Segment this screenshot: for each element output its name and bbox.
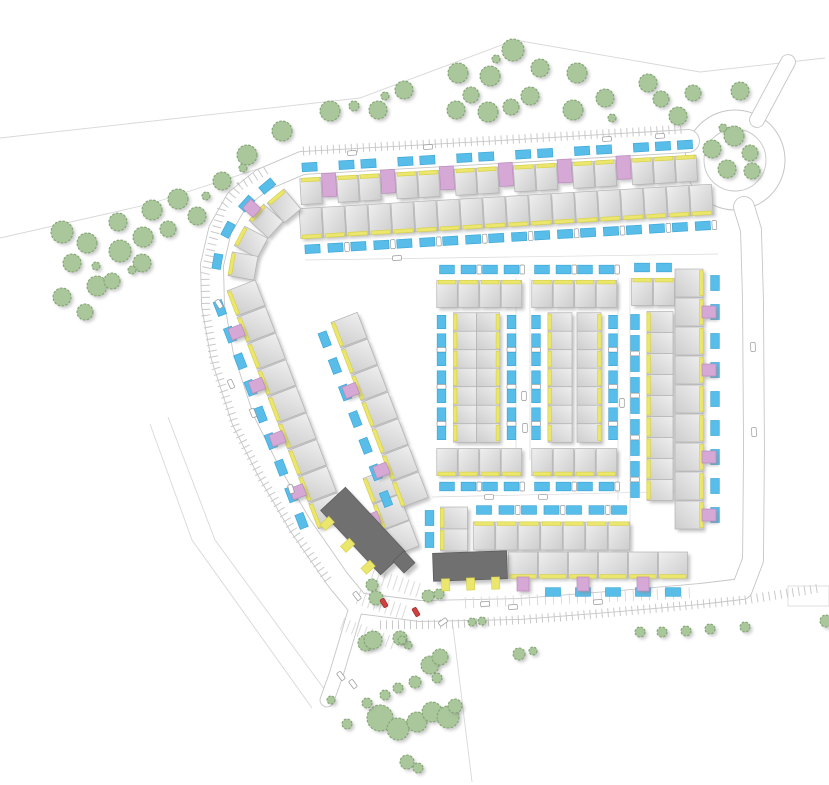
parking-pad xyxy=(507,389,516,402)
parking-pad xyxy=(420,237,435,246)
entrance-strip xyxy=(598,388,602,404)
tree xyxy=(364,631,382,649)
parking-pad xyxy=(567,506,582,515)
entrance-strip xyxy=(478,167,496,172)
car-white xyxy=(520,482,525,491)
parking-pad xyxy=(695,221,710,230)
parking-pad xyxy=(532,371,541,384)
entrance-strip xyxy=(417,227,436,232)
house xyxy=(629,552,658,578)
tree xyxy=(87,276,107,296)
car-white xyxy=(712,220,717,229)
parking-pad xyxy=(631,483,640,498)
parking-pad xyxy=(437,426,446,439)
tree xyxy=(237,145,257,165)
car-white xyxy=(620,399,625,408)
car-white xyxy=(615,482,620,491)
tree xyxy=(395,81,413,99)
site-plan xyxy=(0,0,829,785)
parking-pad xyxy=(457,153,472,162)
parking-pad xyxy=(631,378,640,393)
parking-pad xyxy=(361,159,376,168)
tree xyxy=(362,698,372,708)
accent-house xyxy=(321,173,336,197)
entrance-strip xyxy=(598,333,602,349)
entrance-strip xyxy=(438,280,456,284)
entrance-strip xyxy=(453,351,457,367)
entrance-strip xyxy=(548,425,552,441)
site-plan-drawing xyxy=(0,0,829,785)
parking-pad xyxy=(437,334,446,347)
parking-pad xyxy=(574,146,589,155)
house xyxy=(675,385,703,413)
entrance-strip xyxy=(496,425,500,441)
house xyxy=(647,312,673,333)
car-white xyxy=(532,421,541,426)
parking-pad xyxy=(612,506,627,515)
entrance-tab xyxy=(491,577,499,589)
parking-pad xyxy=(425,511,434,526)
parking-pad xyxy=(603,226,618,235)
parking-pad xyxy=(477,506,492,515)
parking-pad xyxy=(609,315,618,328)
car-white xyxy=(752,427,757,436)
tree xyxy=(531,59,549,77)
parking-pad xyxy=(580,228,595,237)
parking-pad xyxy=(488,233,503,242)
house xyxy=(586,522,608,550)
entrance-strip xyxy=(497,522,516,526)
entrance-strip xyxy=(515,165,533,170)
entrance-strip xyxy=(670,212,689,217)
entrance-strip xyxy=(301,177,319,182)
parking-pad xyxy=(437,352,446,365)
house xyxy=(632,279,653,306)
parking-pad xyxy=(440,482,455,491)
entrance-strip xyxy=(700,416,704,441)
tree xyxy=(213,172,231,190)
car-white xyxy=(515,506,520,515)
entrance-strip xyxy=(565,522,584,526)
tree xyxy=(320,101,340,121)
car-white xyxy=(572,265,577,274)
tree xyxy=(820,615,829,627)
entrance-strip xyxy=(509,222,528,227)
tree xyxy=(109,240,131,262)
car-white xyxy=(520,265,525,274)
parking-pad xyxy=(655,141,670,150)
entrance-strip xyxy=(440,531,444,550)
tree xyxy=(718,160,736,178)
car-white xyxy=(609,384,618,389)
house xyxy=(532,449,553,476)
parking-pad xyxy=(557,229,572,238)
parking-pad xyxy=(657,263,672,272)
accent-house xyxy=(577,577,589,591)
house xyxy=(647,354,673,375)
tree xyxy=(387,718,409,740)
house xyxy=(675,414,703,442)
tree xyxy=(92,262,100,270)
house xyxy=(675,356,703,384)
entrance-strip xyxy=(647,439,651,457)
tree xyxy=(567,63,587,83)
entrance-strip xyxy=(647,418,651,436)
house xyxy=(541,522,563,550)
tree xyxy=(413,763,423,773)
tree xyxy=(724,126,744,146)
apartment-building xyxy=(433,551,508,582)
car-white xyxy=(482,234,487,243)
parking-pad xyxy=(609,408,618,421)
entrance-strip xyxy=(660,575,686,579)
tree xyxy=(369,101,387,119)
car-white xyxy=(507,347,516,352)
car-white xyxy=(655,133,664,138)
entrance-strip xyxy=(371,230,390,235)
house xyxy=(675,269,703,297)
tree xyxy=(168,189,188,209)
parking-pad xyxy=(649,224,664,233)
house xyxy=(647,480,673,501)
entrance-strip xyxy=(360,174,378,179)
tree xyxy=(502,39,524,61)
entrance-strip xyxy=(555,219,574,224)
entrance-strip xyxy=(460,280,478,284)
parking-pad xyxy=(483,265,498,274)
car-white xyxy=(507,384,516,389)
tree xyxy=(742,145,758,161)
car-white xyxy=(392,255,401,260)
parking-pad xyxy=(504,265,519,274)
parking-pad xyxy=(599,482,614,491)
parking-pad xyxy=(711,421,720,436)
tree xyxy=(492,55,500,63)
entrance-strip xyxy=(578,218,597,223)
entrance-strip xyxy=(693,211,712,216)
entrance-strip xyxy=(397,172,415,177)
parking-pad xyxy=(532,352,541,365)
tree xyxy=(448,63,468,83)
parking-pad xyxy=(461,482,476,491)
car-white xyxy=(436,237,441,246)
tree xyxy=(398,636,406,644)
parking-pad xyxy=(609,352,618,365)
car-white xyxy=(423,144,432,149)
tree xyxy=(366,579,378,591)
road xyxy=(742,207,754,589)
house xyxy=(553,281,574,308)
tree xyxy=(342,719,352,729)
house xyxy=(473,522,495,550)
entrance-strip xyxy=(647,334,651,352)
house xyxy=(659,552,688,578)
entrance-strip xyxy=(533,472,551,476)
tree xyxy=(104,273,120,289)
parking-pad xyxy=(631,336,640,351)
tree xyxy=(447,101,465,119)
tree xyxy=(381,92,389,100)
entrance-strip xyxy=(460,472,478,476)
tree xyxy=(432,673,442,683)
tree xyxy=(409,676,421,688)
entrance-strip xyxy=(598,425,602,441)
car-white xyxy=(528,231,533,240)
tree xyxy=(740,622,750,632)
parking-pad xyxy=(374,240,389,249)
parking-pad xyxy=(339,160,354,169)
entrance-strip xyxy=(548,370,552,386)
tree xyxy=(400,755,414,769)
house xyxy=(608,522,630,550)
tree xyxy=(653,91,669,107)
parking-pad xyxy=(507,352,516,365)
tree xyxy=(744,163,760,179)
tree xyxy=(563,100,583,120)
entrance-strip xyxy=(503,472,521,476)
entrance-strip xyxy=(496,333,500,349)
car-white xyxy=(631,351,640,356)
entrance-strip xyxy=(548,407,552,423)
car-white xyxy=(666,223,671,232)
tree xyxy=(160,221,176,237)
tree xyxy=(513,648,525,660)
entrance-strip xyxy=(624,215,643,220)
car-white xyxy=(560,506,565,515)
tree xyxy=(478,617,486,625)
entrance-strip xyxy=(677,155,695,160)
tree xyxy=(478,102,498,122)
entrance-strip xyxy=(548,351,552,367)
parking-pad xyxy=(534,231,549,240)
house xyxy=(647,438,673,459)
entrance-tab xyxy=(441,579,449,591)
entrance-tab xyxy=(466,578,474,590)
car-white xyxy=(437,347,446,352)
parking-pad xyxy=(631,462,640,477)
entrance-strip xyxy=(453,388,457,404)
tree xyxy=(669,107,687,125)
entrance-strip xyxy=(475,522,494,526)
entrance-strip xyxy=(496,370,500,386)
parking-pad xyxy=(483,482,498,491)
entrance-strip xyxy=(601,216,620,221)
entrance-strip xyxy=(700,329,704,354)
parking-pad xyxy=(437,408,446,421)
entrance-strip xyxy=(576,472,594,476)
tree xyxy=(142,200,162,220)
parking-pad xyxy=(532,334,541,347)
parking-pad xyxy=(633,143,648,152)
car-white xyxy=(593,599,602,604)
entrance-strip xyxy=(655,156,673,161)
house xyxy=(437,281,458,308)
accent-house xyxy=(439,166,454,190)
house xyxy=(647,459,673,480)
parking-pad xyxy=(537,148,552,157)
house xyxy=(518,522,540,550)
tree xyxy=(596,89,614,107)
house xyxy=(437,449,458,476)
entrance-strip xyxy=(453,370,457,386)
parking-pad xyxy=(499,506,514,515)
entrance-strip xyxy=(555,472,573,476)
entrance-strip xyxy=(496,314,500,330)
entrance-strip xyxy=(456,168,474,173)
tree xyxy=(480,66,500,86)
plot-line xyxy=(305,254,718,260)
house xyxy=(441,529,468,551)
entrance-strip xyxy=(520,522,539,526)
parking-pad xyxy=(606,588,621,597)
entrance-strip xyxy=(598,407,602,423)
parking-pad xyxy=(437,389,446,402)
parking-pad xyxy=(507,315,516,328)
entrance-strip xyxy=(453,407,457,423)
tree xyxy=(109,213,127,231)
tree xyxy=(705,624,715,634)
entrance-strip xyxy=(647,397,651,415)
parking-pad xyxy=(532,389,541,402)
tree xyxy=(422,590,434,602)
entrance-strip xyxy=(576,280,594,284)
parking-pad xyxy=(305,244,320,253)
car-white xyxy=(477,265,482,274)
parking-pad xyxy=(479,152,494,161)
entrance-strip xyxy=(338,175,356,180)
entrance-strip xyxy=(533,280,551,284)
house xyxy=(458,449,479,476)
tree xyxy=(239,164,247,172)
entrance-strip xyxy=(496,407,500,423)
car-white xyxy=(631,435,640,440)
house xyxy=(569,552,598,578)
parking-pad xyxy=(425,533,434,548)
parking-pad xyxy=(677,140,692,149)
entrance-strip xyxy=(537,163,555,168)
car-white xyxy=(437,421,446,426)
accent-house xyxy=(702,364,716,376)
tree xyxy=(657,627,667,637)
tree xyxy=(432,649,448,665)
parking-pad xyxy=(507,334,516,347)
entrance-strip xyxy=(481,280,499,284)
tree xyxy=(188,207,206,225)
entrance-strip xyxy=(453,425,457,441)
parking-pad xyxy=(328,243,343,252)
parking-pad xyxy=(515,150,530,159)
tree xyxy=(463,87,479,103)
house xyxy=(675,327,703,355)
tree xyxy=(685,85,701,101)
house xyxy=(496,522,518,550)
entrance-strip xyxy=(598,280,616,284)
tree xyxy=(272,121,292,141)
entrance-strip xyxy=(700,474,704,499)
house xyxy=(647,333,673,354)
house xyxy=(675,501,703,529)
entrance-strip xyxy=(481,472,499,476)
car-white xyxy=(532,384,541,389)
parking-pad xyxy=(507,371,516,384)
parking-pad xyxy=(556,482,571,491)
house xyxy=(675,443,703,471)
parking-pad xyxy=(589,506,604,515)
accent-house xyxy=(637,577,649,591)
entrance-strip xyxy=(542,522,561,526)
parking-pad xyxy=(672,222,687,231)
parking-pad xyxy=(666,588,681,597)
parking-pad xyxy=(609,371,618,384)
car-white xyxy=(480,601,489,606)
house xyxy=(501,281,522,308)
road xyxy=(757,62,788,120)
parking-pad xyxy=(535,482,550,491)
accent-house xyxy=(702,451,716,463)
parking-pad xyxy=(466,235,481,244)
car-white xyxy=(344,242,349,251)
house xyxy=(675,298,703,326)
entrance-strip xyxy=(610,522,629,526)
car-white xyxy=(507,421,516,426)
entrance-strip xyxy=(598,472,616,476)
car-white xyxy=(631,393,640,398)
parking-pad xyxy=(351,241,366,250)
tree xyxy=(639,74,657,92)
parking-pad xyxy=(599,265,614,274)
entrance-strip xyxy=(540,575,566,579)
entrance-strip xyxy=(700,271,704,296)
house xyxy=(563,522,585,550)
house xyxy=(501,449,522,476)
tree xyxy=(393,683,403,693)
entrance-strip xyxy=(647,460,651,478)
entrance-strip xyxy=(633,158,651,163)
entrance-strip xyxy=(548,388,552,404)
tree xyxy=(468,618,476,626)
house xyxy=(539,552,568,578)
house xyxy=(553,449,574,476)
parking-pad xyxy=(626,225,641,234)
accent-house xyxy=(616,155,631,179)
house xyxy=(647,375,673,396)
parking-pad xyxy=(359,437,372,454)
house xyxy=(480,449,501,476)
tree xyxy=(128,266,136,274)
tree xyxy=(731,82,749,100)
car-white xyxy=(572,482,577,491)
entrance-strip xyxy=(700,387,704,412)
entrance-strip xyxy=(532,220,551,225)
tree xyxy=(703,140,721,158)
car-white xyxy=(477,482,482,491)
tree xyxy=(448,699,462,713)
house xyxy=(596,281,617,308)
parking-pad xyxy=(532,408,541,421)
entrance-strip xyxy=(496,388,500,404)
tree xyxy=(77,304,93,320)
entrance-strip xyxy=(394,229,413,234)
accent-house xyxy=(702,306,716,318)
parking-pad xyxy=(631,357,640,372)
parking-pad xyxy=(420,155,435,164)
car-white xyxy=(631,477,640,482)
house xyxy=(441,507,468,529)
house xyxy=(596,449,617,476)
parking-pad xyxy=(532,426,541,439)
parking-pad xyxy=(578,265,593,274)
entrance-strip xyxy=(598,351,602,367)
